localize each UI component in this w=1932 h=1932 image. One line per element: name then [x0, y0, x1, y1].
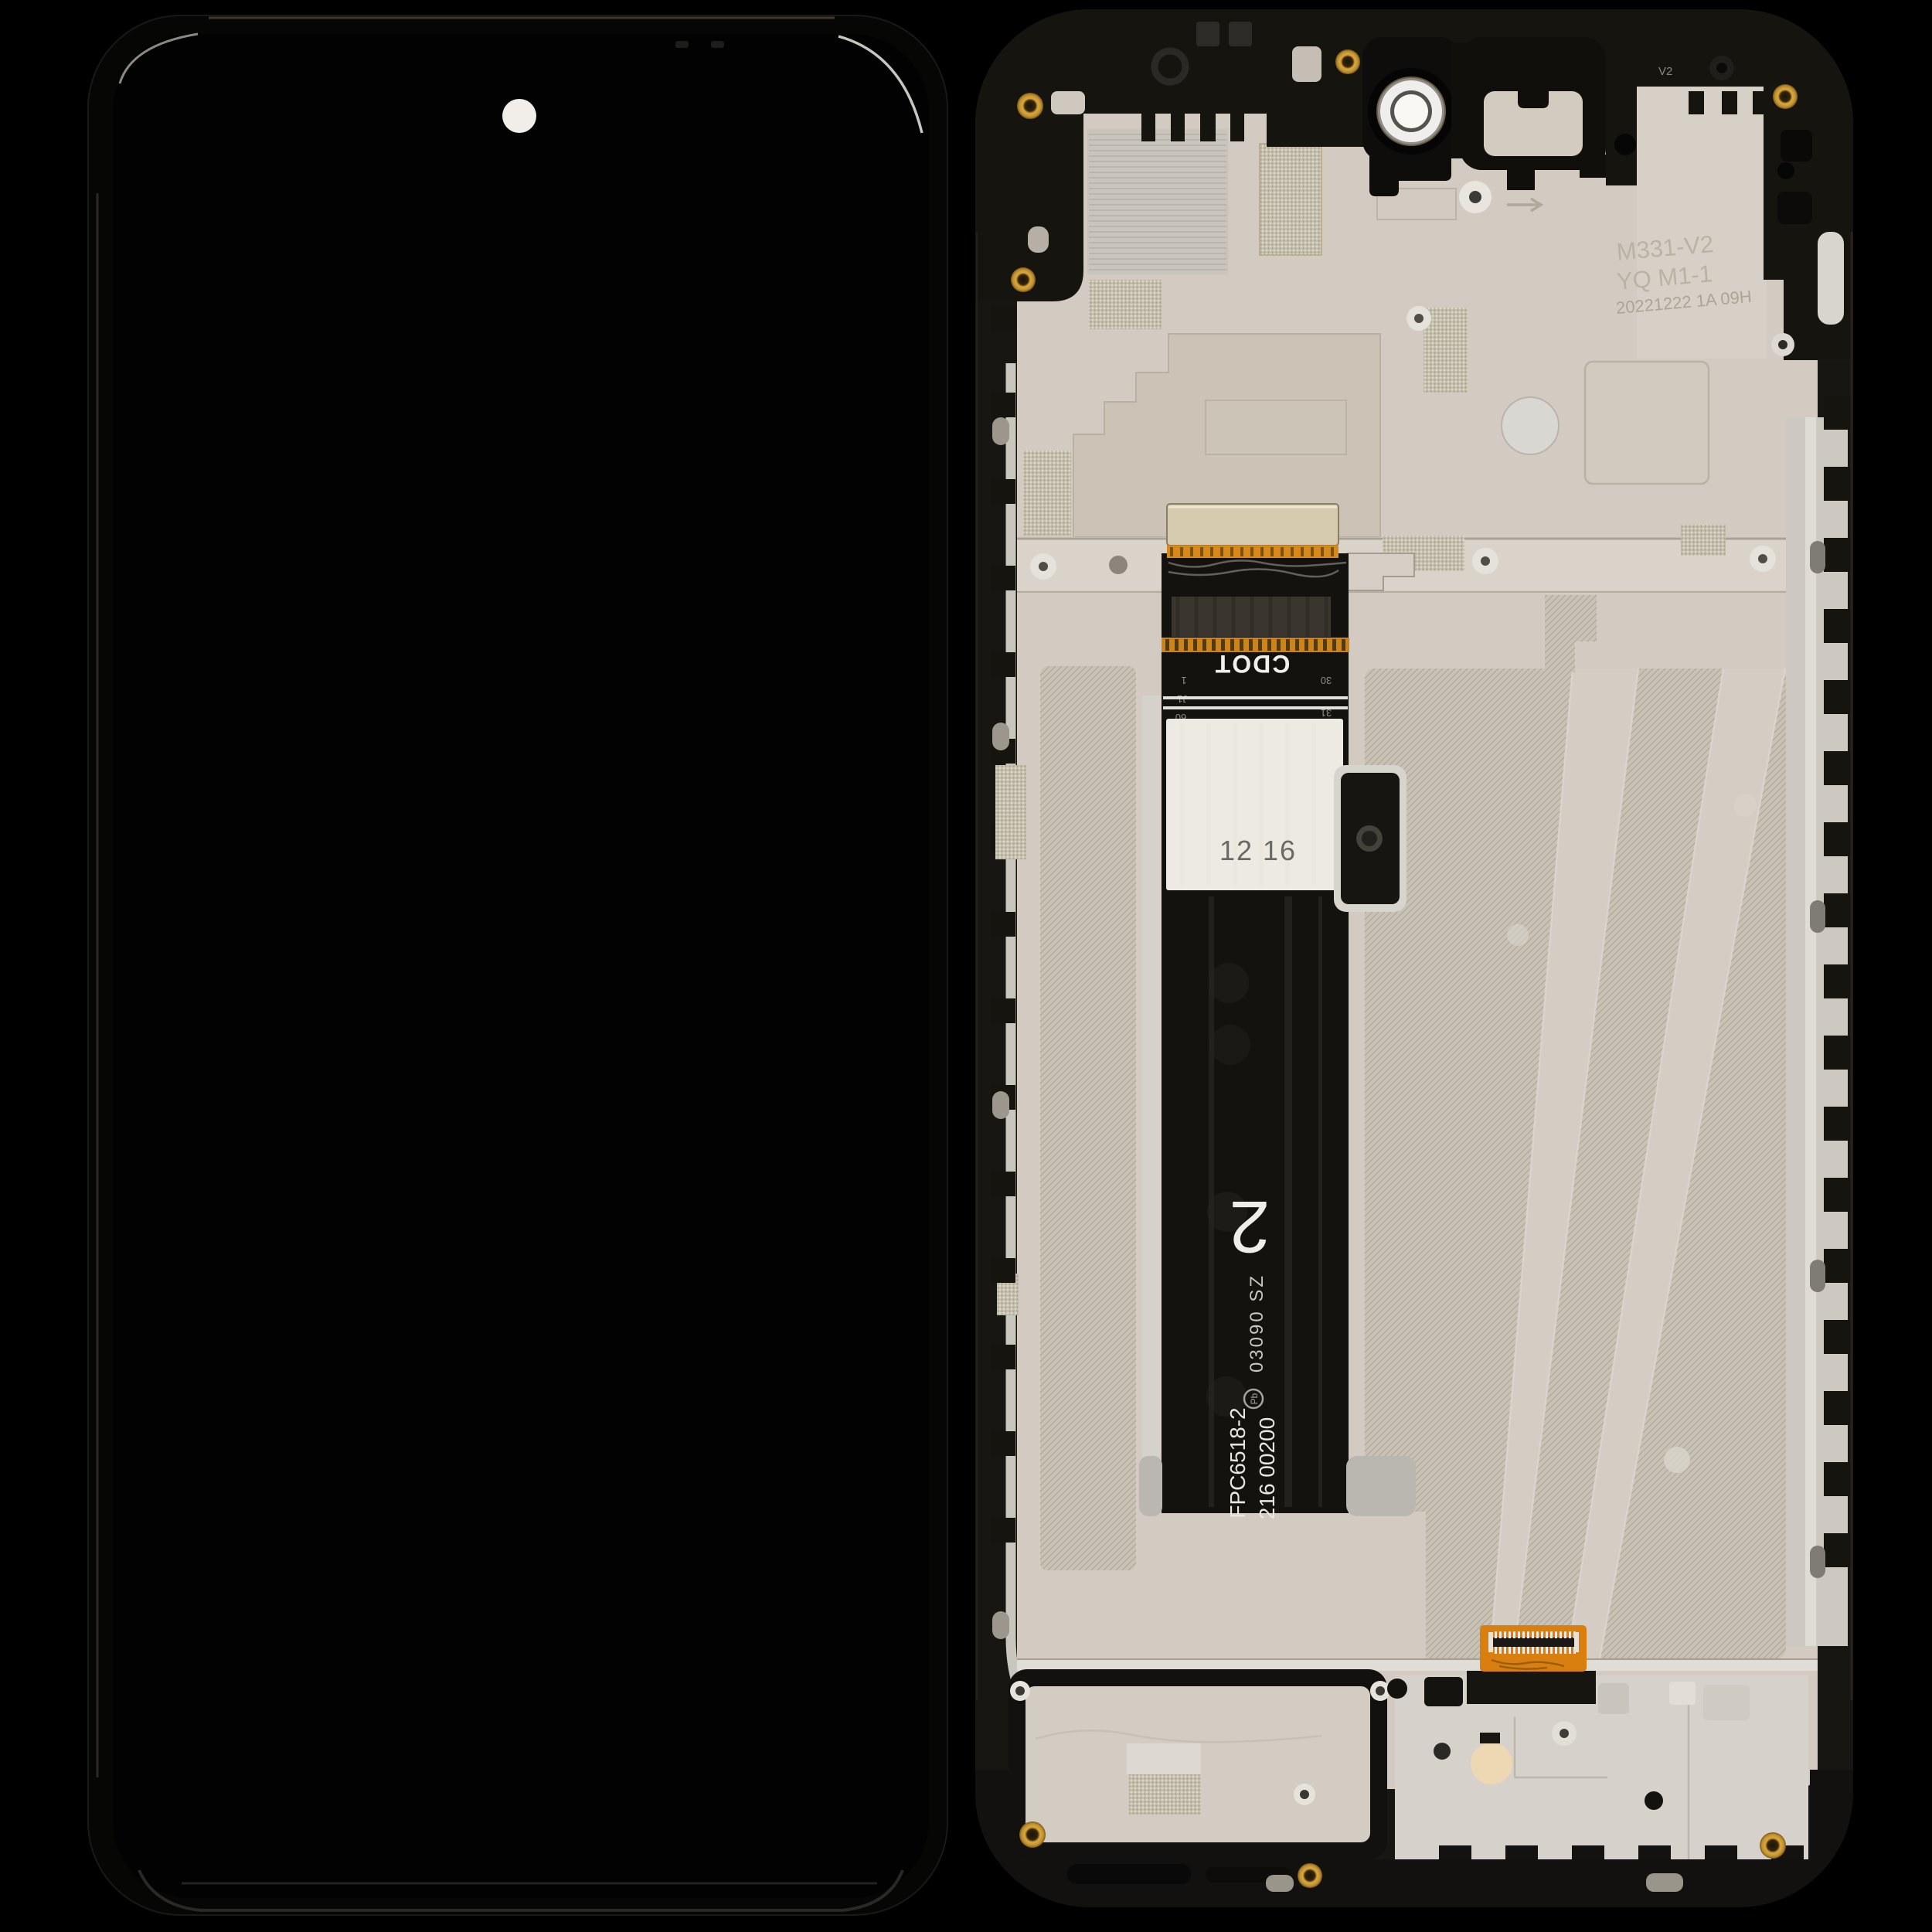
- svg-text:30: 30: [1321, 675, 1332, 686]
- svg-text:V2: V2: [1658, 65, 1672, 78]
- svg-text:FPC6518-2: FPC6518-2: [1226, 1407, 1250, 1518]
- svg-text:12 16: 12 16: [1219, 835, 1297, 866]
- svg-text:03090 SZ: 03090 SZ: [1247, 1274, 1267, 1372]
- svg-text:Pb: Pb: [1249, 1393, 1260, 1404]
- svg-text:216 00200: 216 00200: [1255, 1417, 1279, 1519]
- svg-text:1: 1: [1181, 675, 1186, 686]
- svg-text:CDOT: CDOT: [1214, 650, 1291, 678]
- svg-text:2: 2: [1230, 1185, 1270, 1267]
